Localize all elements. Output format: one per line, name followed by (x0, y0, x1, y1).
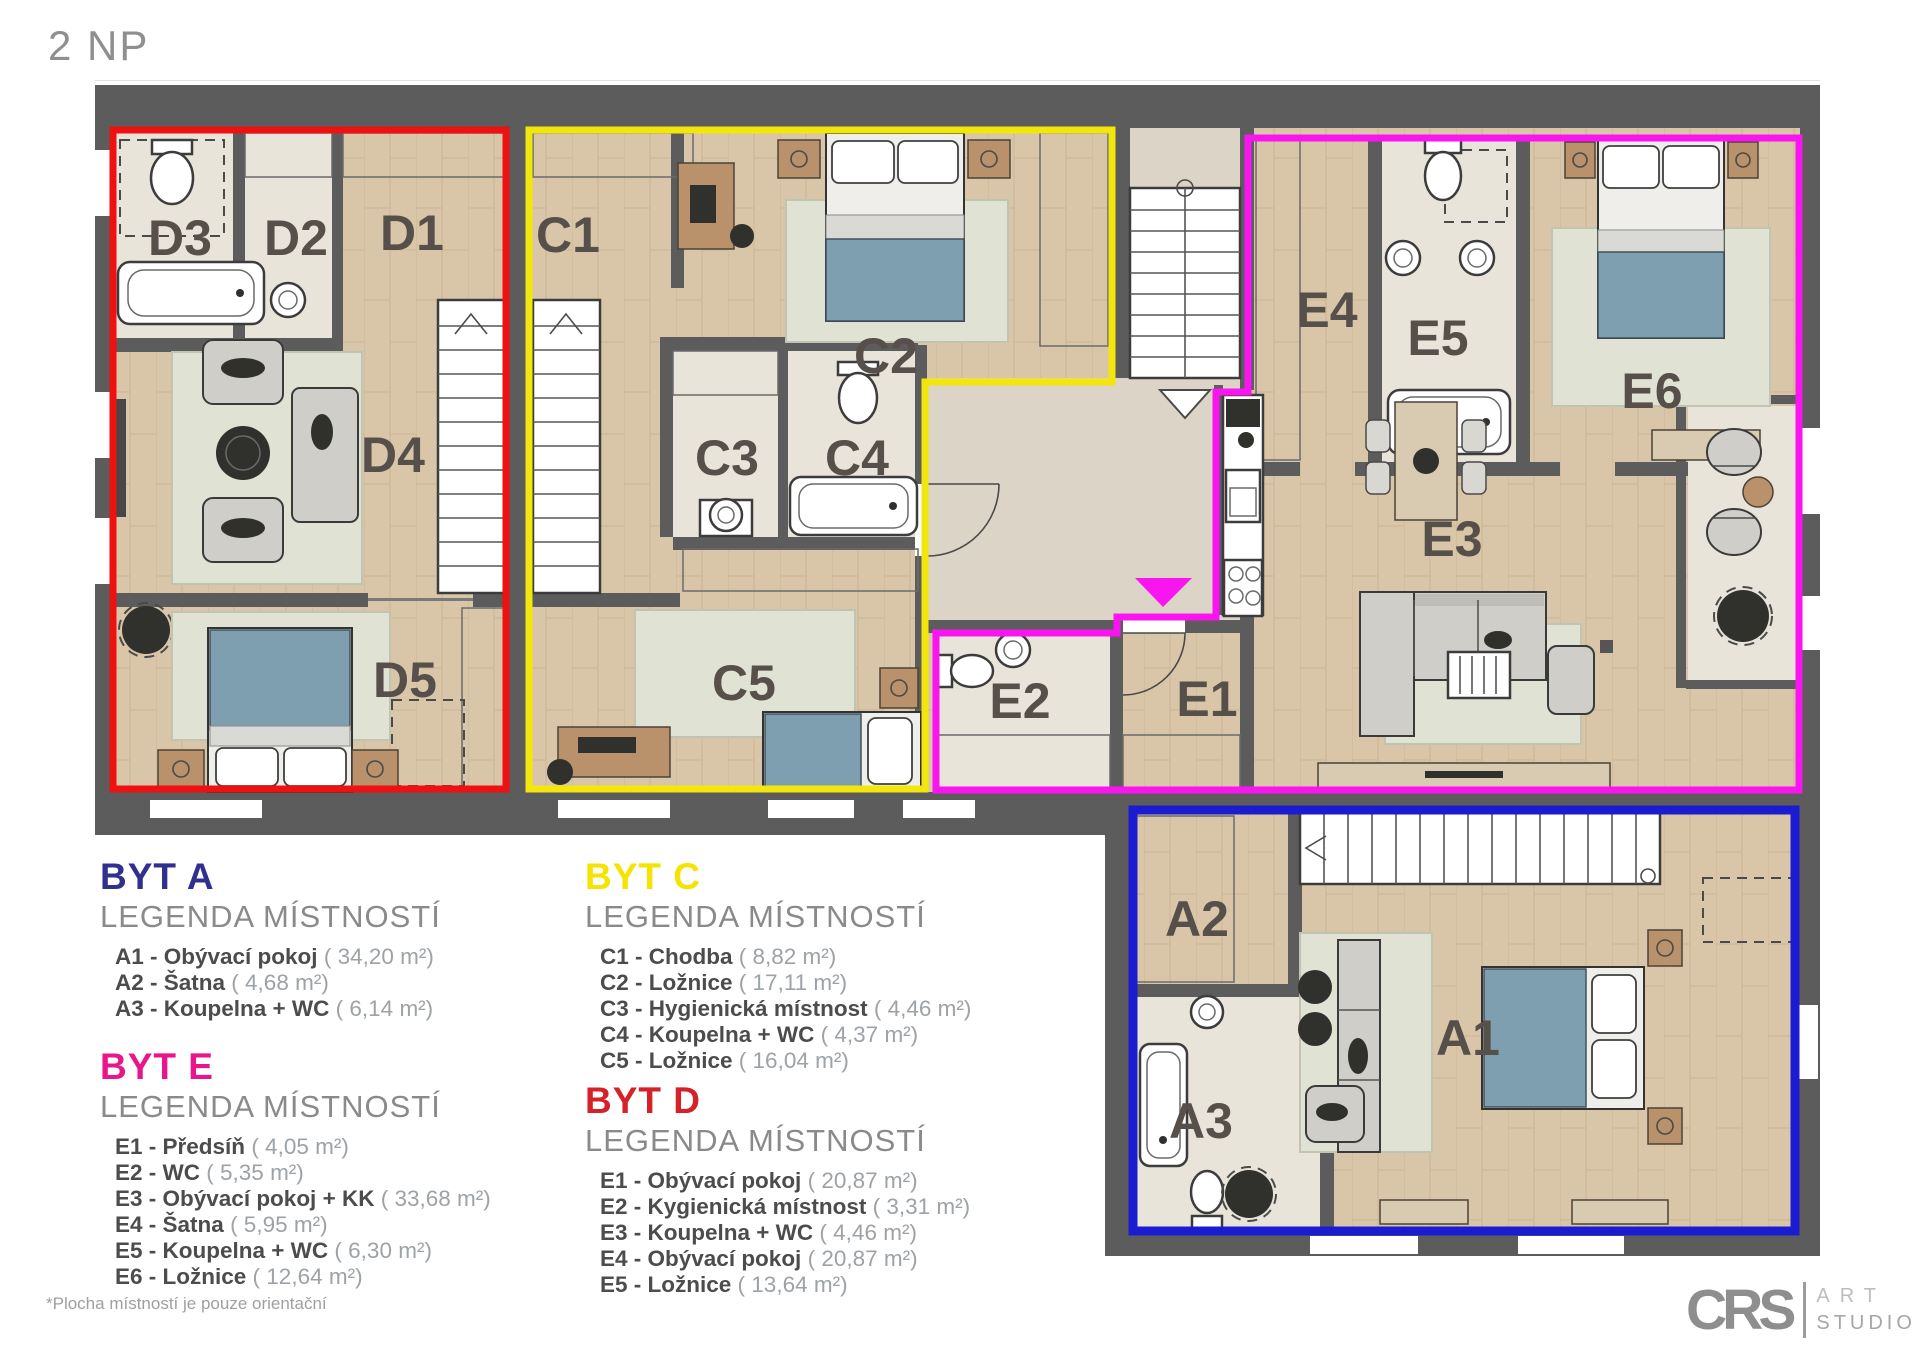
room-label-d2: D2 (264, 210, 328, 266)
room-label-c1: C1 (536, 207, 600, 263)
room-label-e3: E3 (1421, 511, 1482, 567)
studio-logo: CRS ART STUDIO (1686, 1280, 1916, 1340)
room-label-c5: C5 (712, 655, 776, 711)
legend-subtitle: LEGENDA MÍSTNOSTÍ (100, 899, 600, 935)
legend-room-row: E2 - Kygienická místnost ( 3,31 m²) (585, 1194, 1085, 1220)
floor-plan-page: 2 NP (0, 0, 1920, 1357)
legend-room-row: C4 - Koupelna + WC ( 4,37 m²) (585, 1022, 1085, 1048)
room-d2-sink (271, 283, 305, 317)
room-label-e6: E6 (1621, 363, 1682, 419)
bathroom-c3 (700, 499, 752, 536)
legend-room-row: E6 - Ložnice ( 12,64 m²) (100, 1264, 600, 1290)
legend-byt-e: BYT E LEGENDA MÍSTNOSTÍ E1 - Předsíň ( 4… (100, 1046, 600, 1290)
legend-room-row: A1 - Obývací pokoj ( 34,20 m²) (100, 944, 600, 970)
area-disclaimer: *Plocha místností je pouze orientační (46, 1294, 327, 1314)
legend-title-byt-c: BYT C (585, 856, 1085, 898)
legend-room-row: E2 - WC ( 5,35 m²) (100, 1160, 600, 1186)
room-label-e4: E4 (1296, 282, 1357, 338)
legend-room-row: E3 - Koupelna + WC ( 4,46 m²) (585, 1220, 1085, 1246)
legend-room-row: C1 - Chodba ( 8,82 m²) (585, 944, 1085, 970)
legend-room-row: E5 - Koupelna + WC ( 6,30 m²) (100, 1238, 600, 1264)
legend-room-row: E4 - Obývací pokoj ( 20,87 m²) (585, 1246, 1085, 1272)
room-label-c2: C2 (854, 328, 918, 384)
legend-room-row: E5 - Ložnice ( 13,64 m²) (585, 1272, 1085, 1298)
legend-room-row: E4 - Šatna ( 5,95 m²) (100, 1212, 600, 1238)
legend-byt-c: BYT C LEGENDA MÍSTNOSTÍ C1 - Chodba ( 8,… (585, 856, 1085, 1074)
legend-room-row: E3 - Obývací pokoj + KK ( 33,68 m²) (100, 1186, 600, 1212)
kitchen-e3 (1223, 395, 1263, 616)
room-label-e1: E1 (1176, 671, 1237, 727)
room-label-d1: D1 (380, 205, 444, 261)
room-label-a2: A2 (1165, 891, 1229, 947)
room-label-c3: C3 (695, 430, 759, 486)
room-label-a3: A3 (1169, 1093, 1233, 1149)
room-label-e2: E2 (989, 673, 1050, 729)
legend-title-byt-d: BYT D (585, 1080, 1085, 1122)
legend-byt-a: BYT A LEGENDA MÍSTNOSTÍ A1 - Obývací pok… (100, 856, 600, 1022)
legend-room-row: C2 - Ložnice ( 17,11 m²) (585, 970, 1085, 996)
legend-subtitle: LEGENDA MÍSTNOSTÍ (585, 899, 1085, 935)
room-label-c4: C4 (825, 430, 889, 486)
legend-room-row: A2 - Šatna ( 4,68 m²) (100, 970, 600, 996)
stairs-apartment-a (1300, 813, 1660, 884)
legend-room-row: E1 - Obývací pokoj ( 20,87 m²) (585, 1168, 1085, 1194)
logo-word-studio: STUDIO (1816, 1310, 1916, 1337)
legend-room-row: A3 - Koupelna + WC ( 6,14 m²) (100, 996, 600, 1022)
stairs-d1 (438, 300, 505, 593)
legend-title-byt-e: BYT E (100, 1046, 600, 1088)
logo-divider (1803, 1282, 1806, 1338)
legend-room-row: E1 - Předsíň ( 4,05 m²) (100, 1134, 600, 1160)
stairwell-central (1130, 128, 1240, 418)
legend-room-row: C3 - Hygienická místnost ( 4,46 m²) (585, 996, 1085, 1022)
room-label-e5: E5 (1407, 310, 1468, 366)
logo-word-art: ART (1816, 1283, 1916, 1310)
logo-brand: CRS (1686, 1280, 1791, 1340)
legend-subtitle: LEGENDA MÍSTNOSTÍ (100, 1089, 600, 1125)
room-label-d5: D5 (373, 652, 437, 708)
legend-room-row: C5 - Ložnice ( 16,04 m²) (585, 1048, 1085, 1074)
legend-subtitle: LEGENDA MÍSTNOSTÍ (585, 1123, 1085, 1159)
room-label-d3: D3 (148, 210, 212, 266)
legend-byt-d: BYT D LEGENDA MÍSTNOSTÍ E1 - Obývací pok… (585, 1080, 1085, 1298)
room-label-d4: D4 (361, 427, 425, 483)
legend-title-byt-a: BYT A (100, 856, 600, 898)
stairs-c1 (533, 300, 600, 593)
room-label-a1: A1 (1436, 1010, 1500, 1066)
